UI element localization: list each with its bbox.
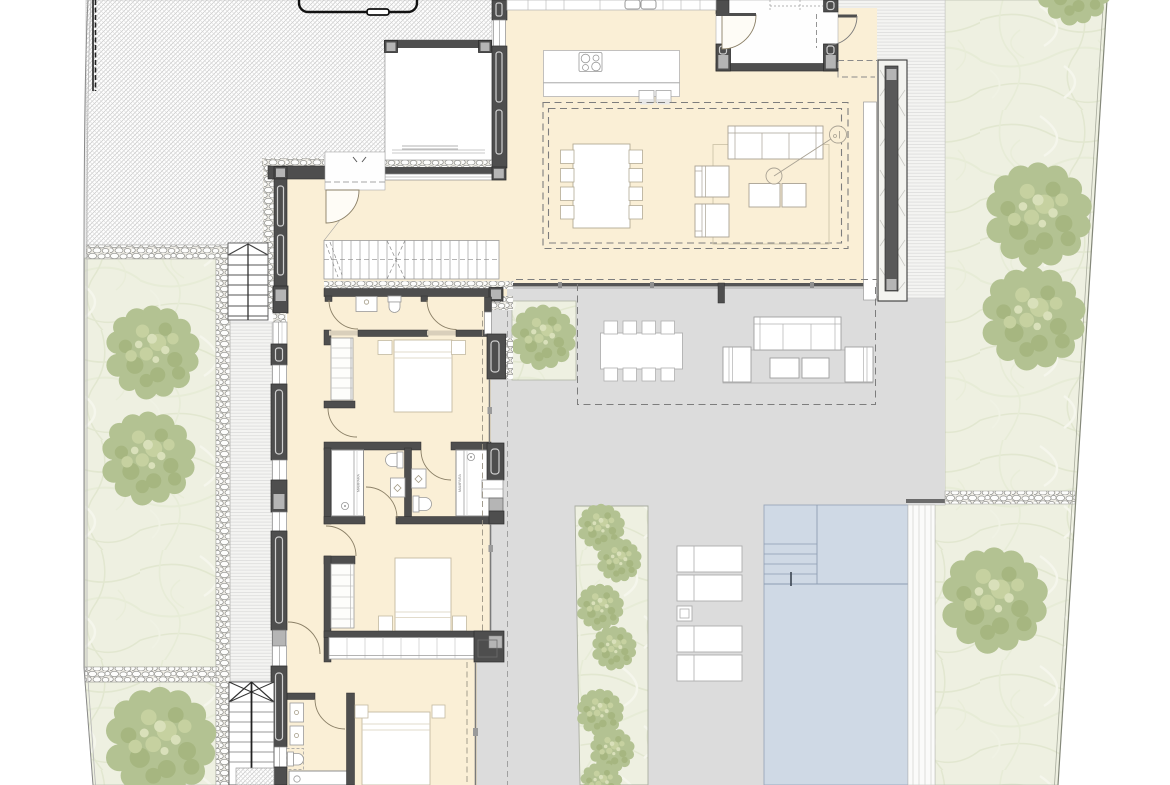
svg-text:MAMPARA: MAMPARA <box>357 473 361 492</box>
svg-text:MAMPARA: MAMPARA <box>458 473 462 492</box>
